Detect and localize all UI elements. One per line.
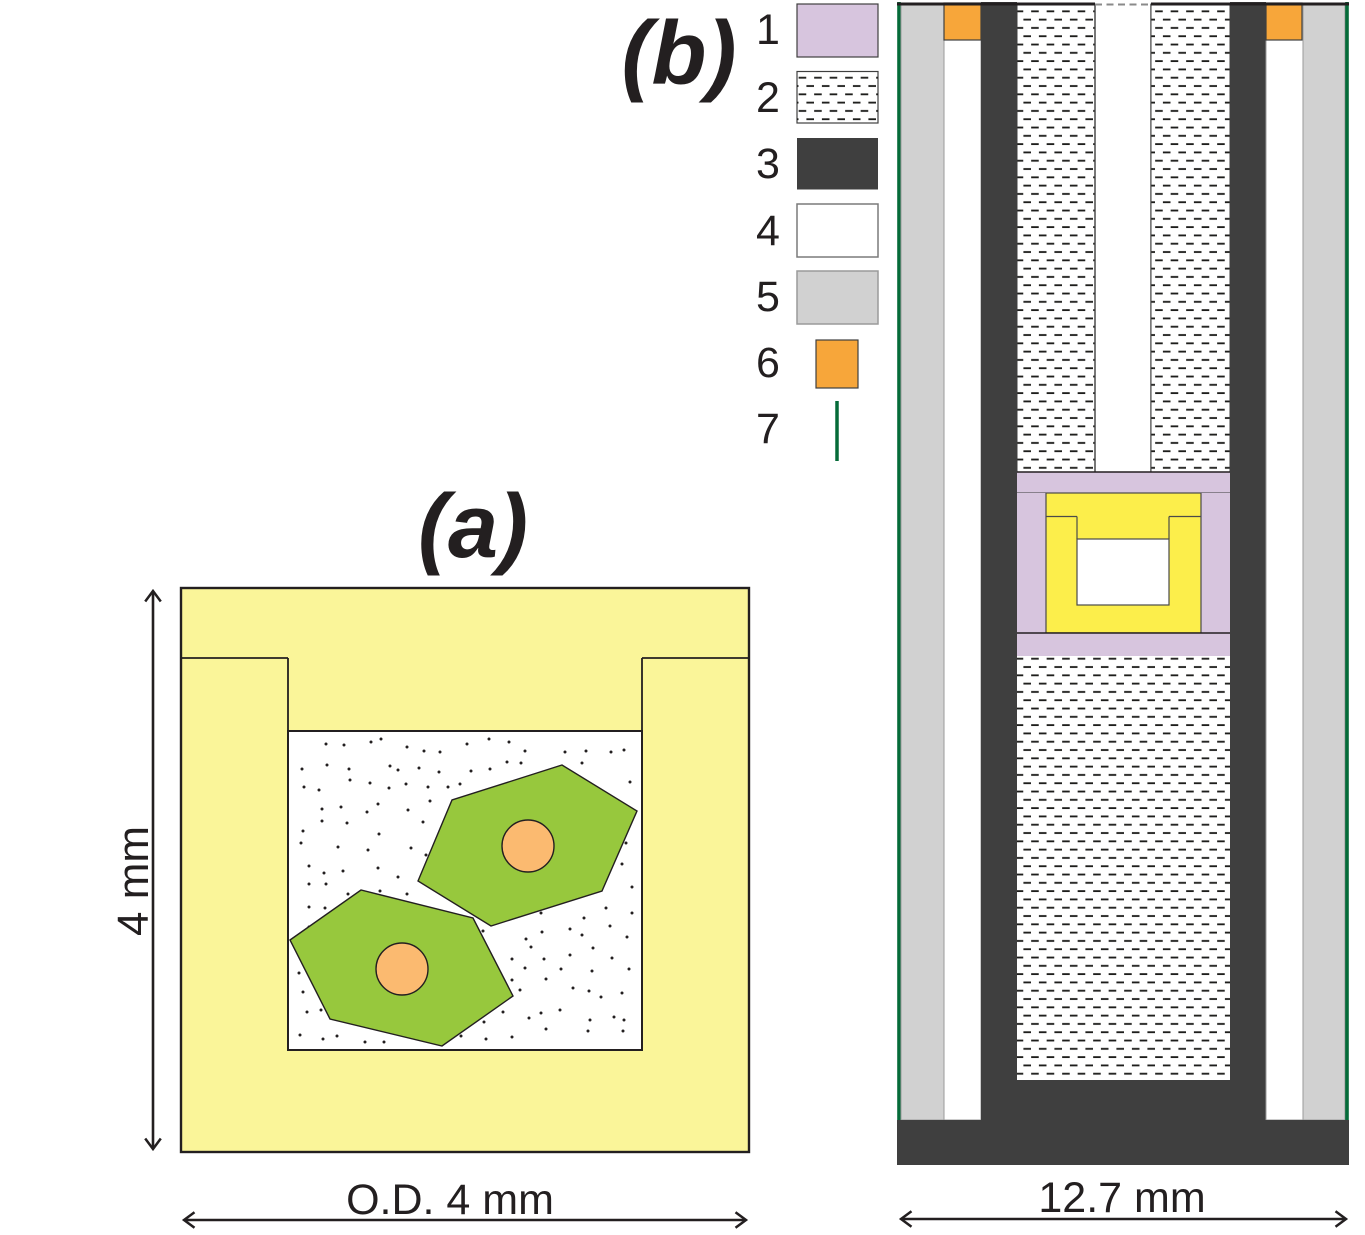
svg-text:6: 6 [756,339,780,387]
svg-text:4: 4 [756,207,780,255]
svg-text:5: 5 [756,273,780,321]
svg-text:7: 7 [756,405,780,453]
svg-text:1: 1 [756,6,780,54]
svg-text:12.7 mm: 12.7 mm [1038,1174,1205,1222]
svg-text:2: 2 [756,74,780,122]
svg-text:(b): (b) [622,4,737,104]
svg-text:4 mm: 4 mm [109,826,158,936]
svg-text:O.D. 4 mm: O.D. 4 mm [346,1176,554,1224]
svg-text:(a): (a) [418,477,528,577]
svg-text:3: 3 [756,140,780,188]
